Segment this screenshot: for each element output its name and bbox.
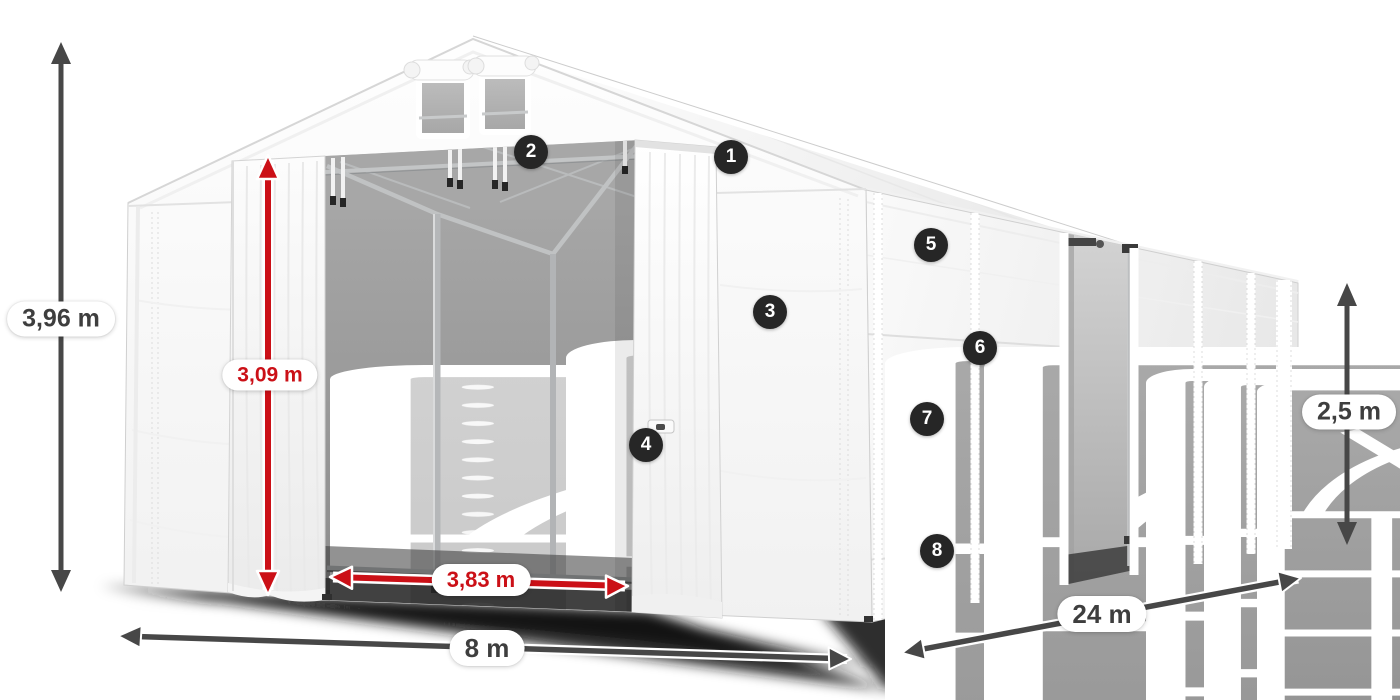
- callout-marker-4[interactable]: 4: [629, 428, 663, 462]
- dimension-label-entrance-width: 3,83 m: [432, 564, 531, 596]
- callout-marker-3[interactable]: 3: [753, 295, 787, 329]
- dimension-label-width: 8 m: [450, 630, 525, 666]
- callout-marker-8[interactable]: 8: [920, 534, 954, 568]
- dimension-label-entrance-height: 3,09 m: [222, 360, 317, 391]
- callout-marker-7[interactable]: 7: [910, 402, 944, 436]
- callout-marker-1[interactable]: 1: [714, 140, 748, 174]
- pole-foot: [322, 594, 332, 600]
- dimension-label-total-height: 3,96 m: [7, 302, 115, 337]
- callout-marker-2[interactable]: 2: [514, 135, 548, 169]
- callout-marker-5[interactable]: 5: [914, 228, 948, 262]
- tent-dimension-diagram: 3,96 m 3,09 m 3,83 m 8 m 24 m 2,5 m 1 2 …: [0, 0, 1400, 700]
- callout-marker-6[interactable]: 6: [963, 331, 997, 365]
- side-door-opening: [1064, 233, 1138, 585]
- pole-foot: [864, 616, 873, 622]
- front-door-leaf-right: [632, 140, 722, 618]
- dimension-label-length: 24 m: [1057, 596, 1146, 632]
- dimension-label-side-height: 2,5 m: [1302, 395, 1396, 430]
- tent-illustration: [0, 0, 1400, 700]
